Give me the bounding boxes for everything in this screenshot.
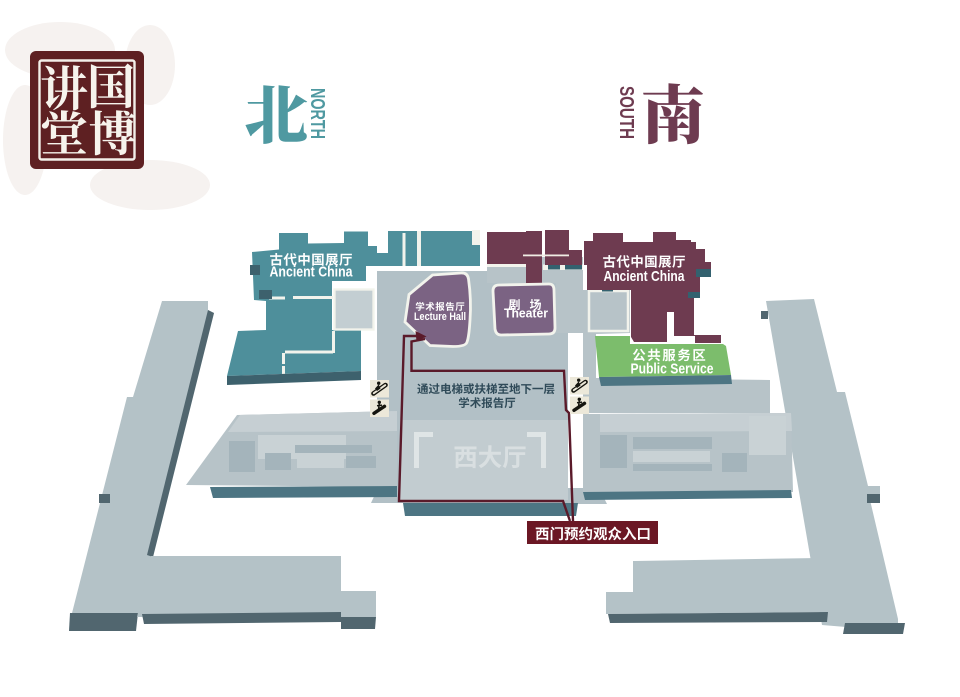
svg-text:Theater: Theater <box>504 306 548 321</box>
svg-text:NORTH: NORTH <box>306 88 328 139</box>
svg-text:Lecture Hall: Lecture Hall <box>414 311 466 323</box>
svg-text:Ancient China: Ancient China <box>604 268 686 285</box>
svg-text:Ancient China: Ancient China <box>270 264 354 281</box>
svg-text:Public Service: Public Service <box>631 361 714 378</box>
svg-text:SOUTH: SOUTH <box>615 86 637 139</box>
